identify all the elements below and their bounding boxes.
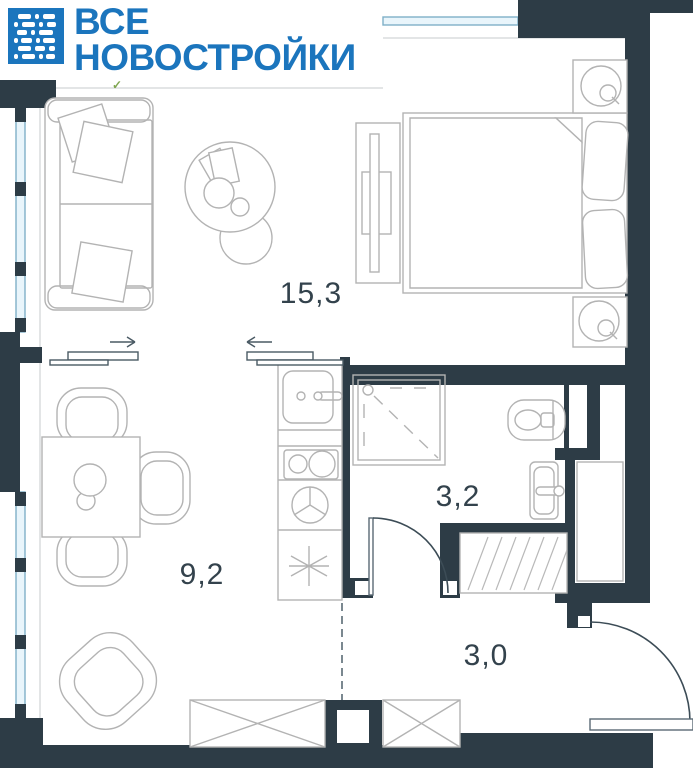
nightstand-bottom [573, 297, 627, 347]
dining-set [42, 388, 190, 586]
armchair [47, 620, 169, 741]
floorplan-page: ВСЕ НОВОСТРОЙКИ ✓ 15,3 9,2 3,2 3,0 [0, 0, 693, 768]
washbasin [530, 462, 564, 519]
bathroom-door [369, 518, 448, 595]
checkmark-annotation: ✓ [112, 78, 122, 92]
entrance-door [590, 622, 693, 730]
wardrobe-right [383, 700, 460, 747]
brand-logo-text[interactable]: ВСЕ НОВОСТРОЙКИ [74, 4, 356, 76]
shower [353, 375, 445, 465]
floorplan-drawing [0, 0, 693, 768]
brand-logo-line2: НОВОСТРОЙКИ [74, 40, 356, 76]
room-area-label-kitchen: 9,2 [180, 558, 225, 592]
wardrobe-hatched [460, 533, 567, 593]
room-area-label-living: 15,3 [280, 277, 342, 311]
kitchen-counter [278, 362, 342, 600]
room-area-label-hallway: 3,0 [464, 639, 509, 673]
coffee-table [185, 142, 275, 264]
toilet [508, 400, 565, 440]
brand-logo-line1: ВСЕ [74, 4, 356, 40]
bed [403, 113, 629, 293]
nightstand-top [573, 60, 627, 113]
wardrobe-left [190, 700, 325, 747]
brand-logo-icon[interactable] [8, 8, 64, 64]
room-area-label-bathroom: 3,2 [436, 480, 481, 514]
tv-stand [356, 123, 400, 283]
sliding-doors [50, 337, 343, 365]
sofa [45, 98, 153, 310]
